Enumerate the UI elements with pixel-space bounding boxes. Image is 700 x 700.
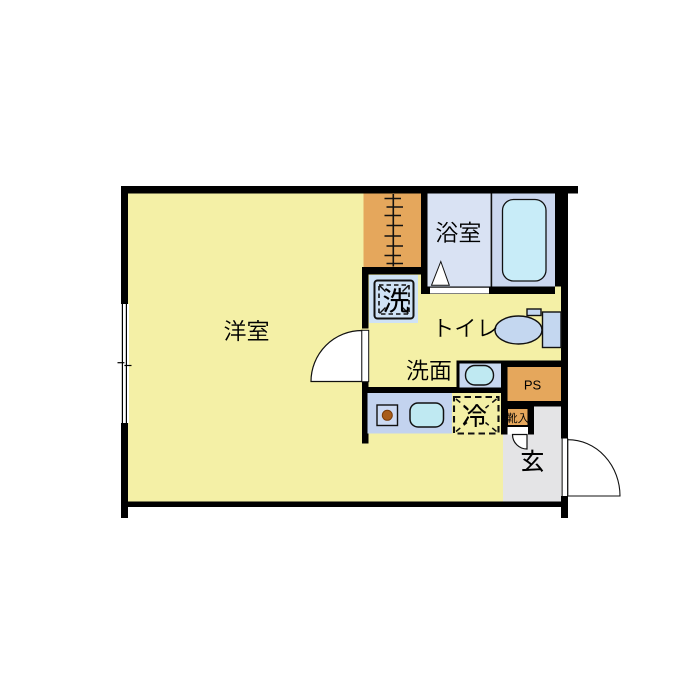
svg-text:PS: PS (524, 378, 542, 393)
